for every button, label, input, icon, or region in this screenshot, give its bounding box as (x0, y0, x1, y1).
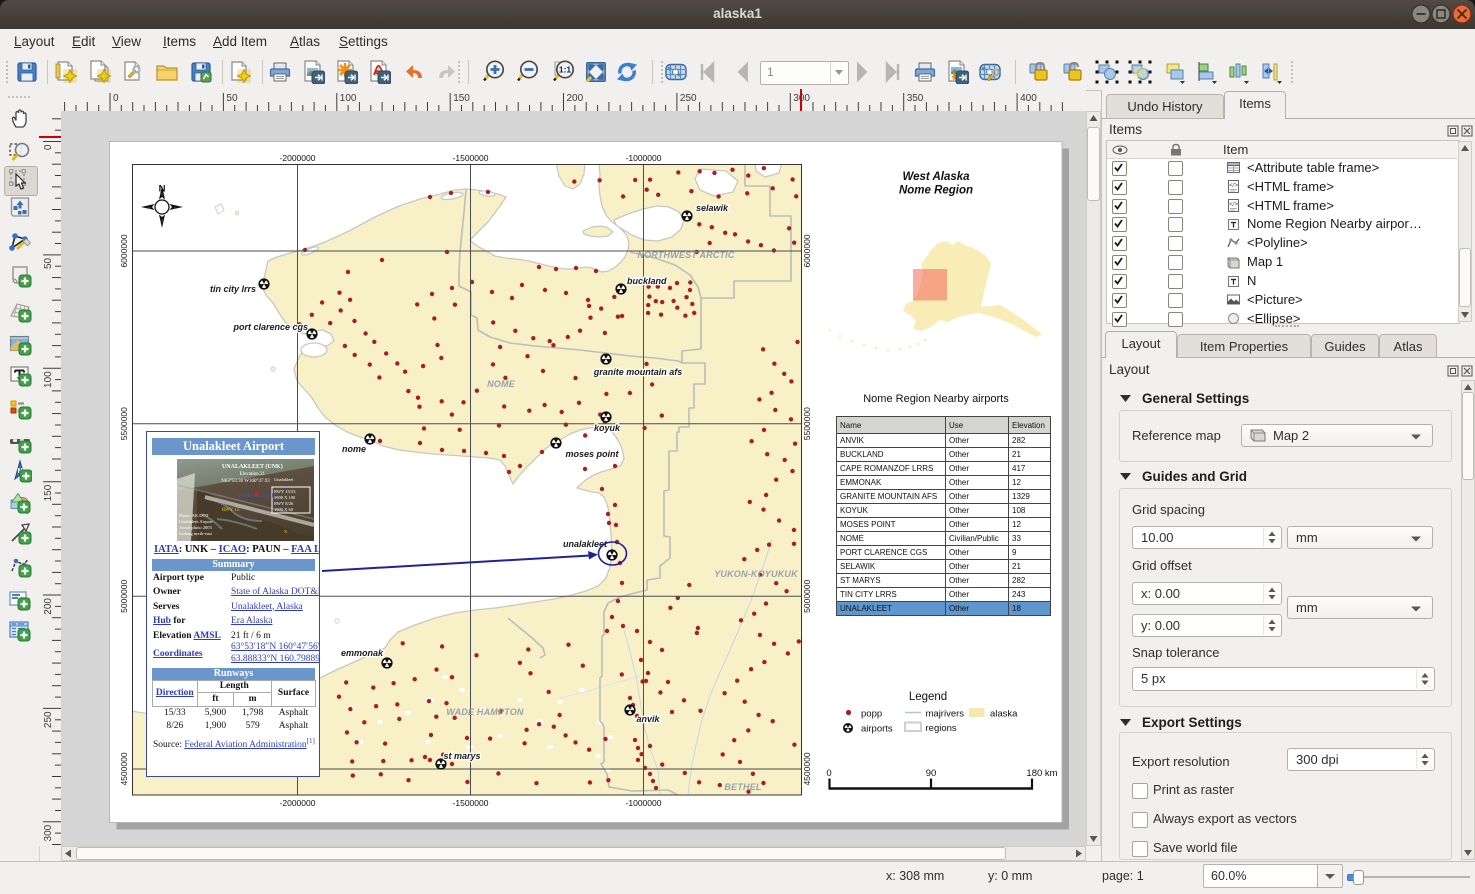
svg-text:st marys: st marys (443, 751, 480, 761)
svg-text:4500000: 4500000 (802, 752, 812, 785)
svg-text:50: 50 (43, 257, 54, 269)
svg-text:granite mountain afs: granite mountain afs (593, 367, 683, 377)
svg-text:port clarence cgs: port clarence cgs (232, 322, 308, 332)
svg-text:6000000: 6000000 (119, 234, 129, 267)
svg-text:400: 400 (1020, 93, 1037, 104)
svg-text:250: 250 (43, 711, 54, 728)
svg-text:selawik: selawik (696, 203, 729, 213)
svg-text:50: 50 (226, 93, 238, 104)
svg-text:Nome Region: Nome Region (899, 185, 973, 197)
svg-text:YUKON-KOYUKUK: YUKON-KOYUKUK (714, 569, 799, 579)
svg-text:200: 200 (43, 598, 54, 615)
svg-text:1:1: 1:1 (559, 65, 572, 75)
svg-text:5000000: 5000000 (119, 579, 129, 612)
svg-text:5000000: 5000000 (802, 579, 812, 612)
svg-text:tin city lrrs: tin city lrrs (210, 284, 256, 294)
svg-text:nome: nome (342, 444, 366, 454)
svg-text:Photo: AK DOT: Photo: AK DOT (179, 513, 209, 518)
svg-text:250: 250 (680, 93, 697, 104)
svg-text:350: 350 (907, 93, 924, 104)
svg-text:BETHEL: BETHEL (724, 782, 761, 792)
svg-text:Unalakleet: Unalakleet (274, 477, 294, 482)
svg-text:5500000: 5500000 (802, 407, 812, 440)
svg-text:buckland: buckland (627, 276, 667, 286)
svg-text:5500000: 5500000 (119, 407, 129, 440)
svg-text:-2000000: -2000000 (280, 153, 316, 163)
svg-text:UNALAKLEET (UNK): UNALAKLEET (UNK) (222, 463, 283, 470)
svg-text:anvik: anvik (636, 714, 660, 724)
svg-text:RWY 8/26: RWY 8/26 (274, 501, 294, 506)
svg-text:0: 0 (826, 768, 831, 779)
svg-text:-1000000: -1000000 (626, 153, 662, 163)
svg-text:RWY 15: RWY 15 (222, 508, 240, 513)
svg-text:N: N (161, 193, 163, 197)
svg-text:4500000: 4500000 (119, 752, 129, 785)
svg-text:NOME: NOME (487, 379, 516, 389)
svg-text:airports: airports (861, 724, 893, 735)
svg-text:RWY 15/33: RWY 15/33 (274, 489, 296, 494)
svg-text:N63°53.30 W160°47.93: N63°53.30 W160°47.93 (221, 479, 270, 484)
svg-text:looking north-east: looking north-east (179, 531, 213, 536)
svg-text:</>: </> (1229, 202, 1238, 208)
svg-text:Unalakleet Airport: Unalakleet Airport (179, 519, 213, 524)
svg-text:Aerial photo 2003: Aerial photo 2003 (179, 525, 212, 530)
svg-text:200: 200 (567, 93, 584, 104)
svg-text:moses point: moses point (565, 449, 619, 459)
svg-text:0: 0 (113, 93, 119, 104)
svg-text:NORTHWEST ARCTIC: NORTHWEST ARCTIC (637, 250, 734, 260)
svg-text:180 km: 180 km (1026, 768, 1057, 779)
svg-text:alaska: alaska (990, 709, 1018, 720)
svg-text:1900 X 60: 1900 X 60 (274, 507, 294, 512)
svg-text:100: 100 (43, 371, 54, 388)
svg-text:-1000000: -1000000 (626, 798, 662, 808)
svg-text:300: 300 (43, 824, 54, 841)
svg-text:90: 90 (926, 768, 937, 779)
svg-text:-1500000: -1500000 (453, 153, 489, 163)
svg-text:West Alaska: West Alaska (902, 171, 970, 183)
svg-text:6000000: 6000000 (802, 234, 812, 267)
svg-text:0: 0 (43, 144, 54, 150)
svg-text:emmonak: emmonak (341, 648, 384, 658)
svg-text:150: 150 (453, 93, 470, 104)
svg-text:5900 X 100: 5900 X 100 (274, 495, 296, 500)
svg-text:popp: popp (861, 709, 882, 720)
svg-text:Elevation 21: Elevation 21 (240, 472, 266, 477)
svg-text:majrivers: majrivers (926, 709, 965, 720)
svg-text:100: 100 (340, 93, 357, 104)
svg-text:WADE HAMPTON: WADE HAMPTON (446, 707, 524, 717)
svg-text:koyuk: koyuk (594, 423, 621, 433)
svg-text:Legend: Legend (909, 691, 947, 703)
svg-text:W: W (148, 206, 151, 210)
svg-text:Nome Region Nearby airports: Nome Region Nearby airports (863, 393, 1009, 405)
svg-text:-2000000: -2000000 (280, 798, 316, 808)
svg-text:E: E (174, 206, 176, 210)
svg-text:regions: regions (926, 723, 957, 734)
svg-text:S: S (161, 219, 163, 223)
svg-text:</>: </> (1229, 183, 1238, 189)
svg-text:150: 150 (43, 484, 54, 501)
svg-text:-1500000: -1500000 (453, 798, 489, 808)
